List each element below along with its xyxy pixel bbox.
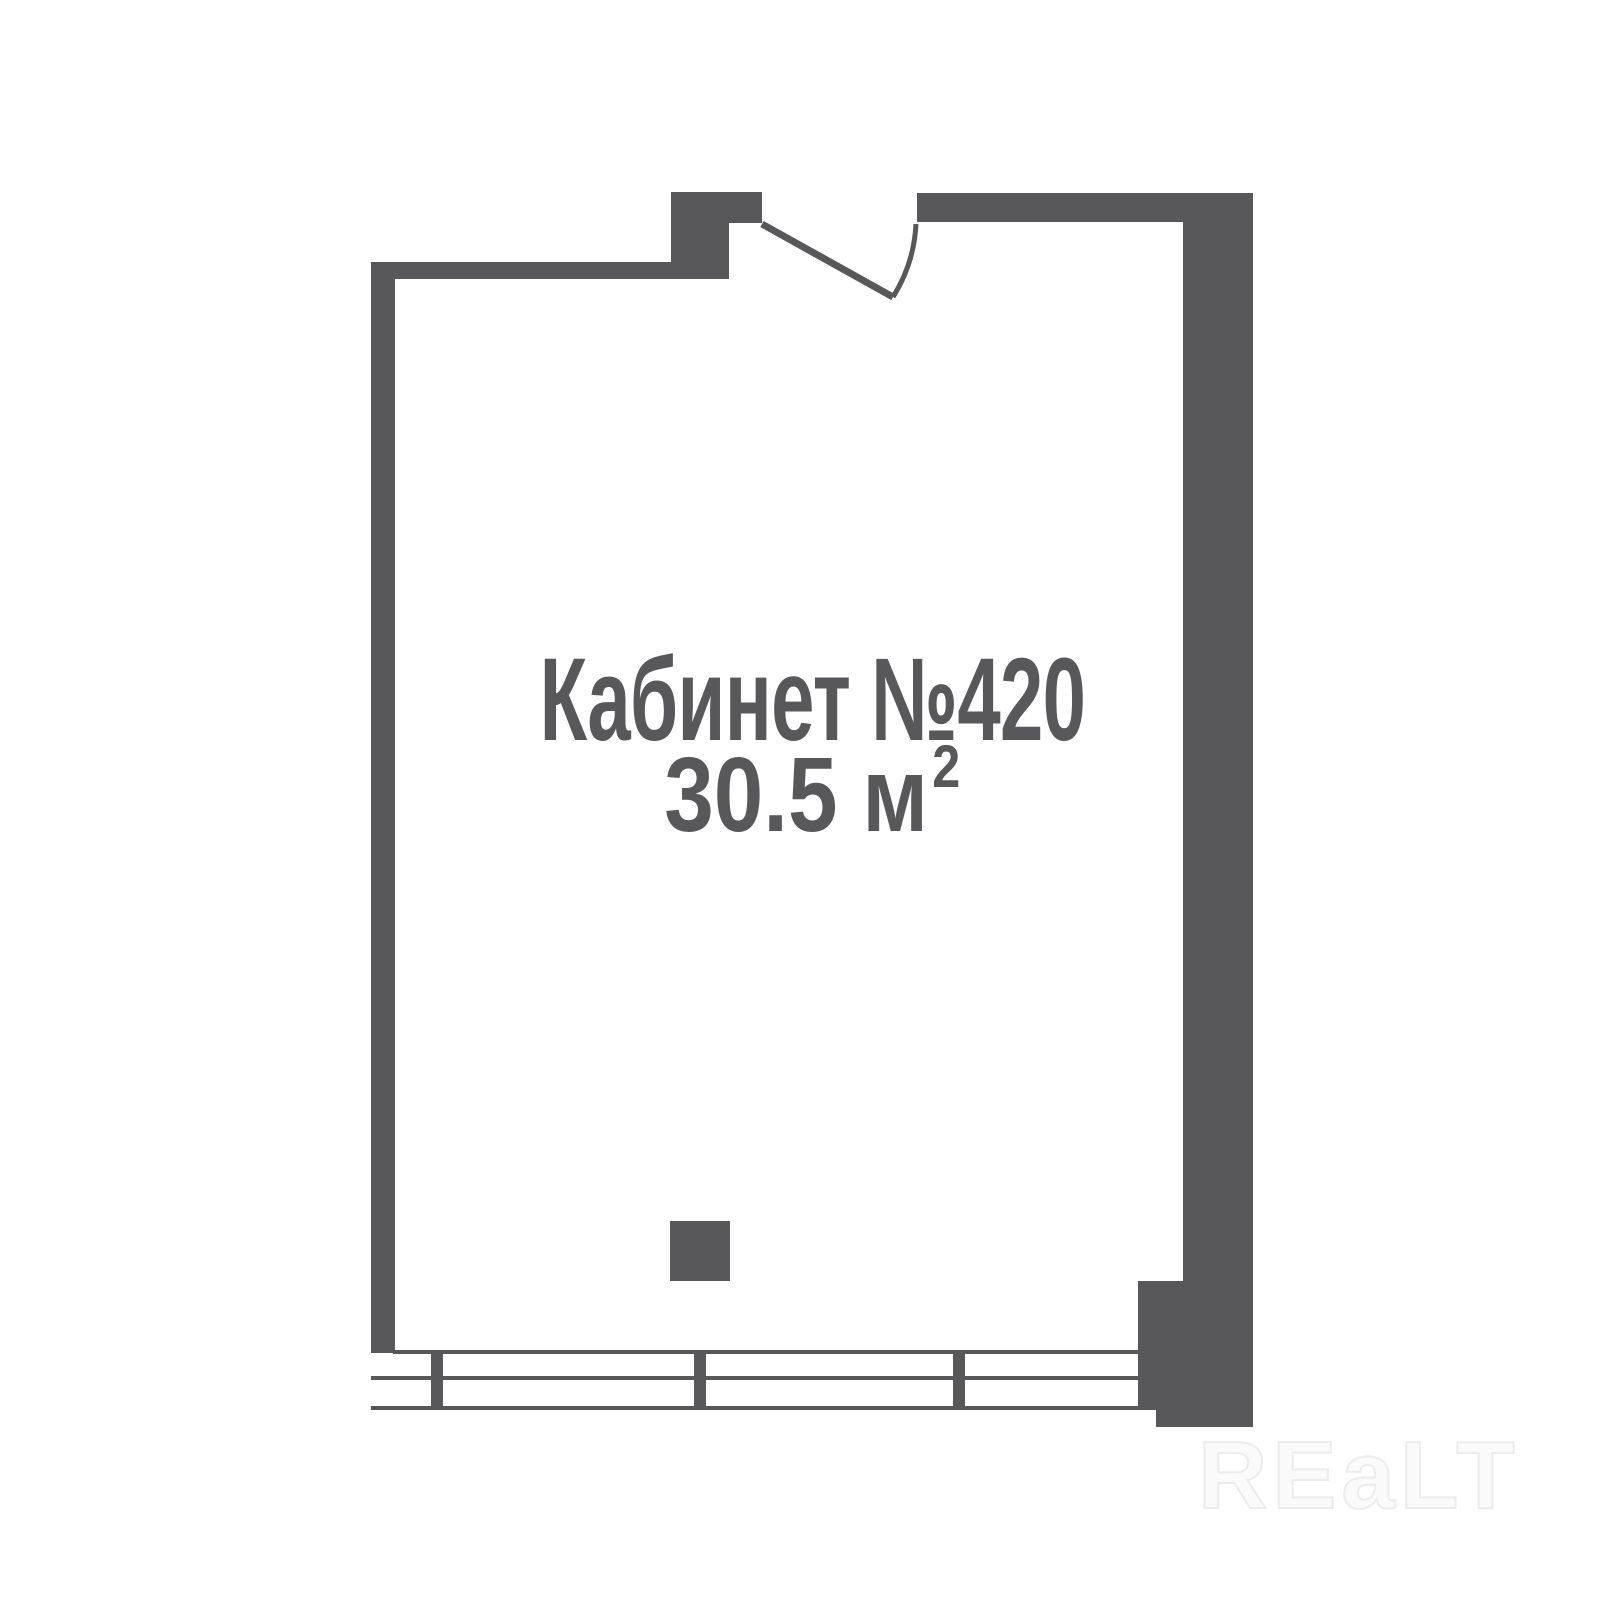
window-sill-inner	[393, 1350, 1138, 1354]
door-leaf	[762, 224, 893, 297]
window-sill-outer	[371, 1406, 1138, 1410]
top-wall-left	[371, 262, 671, 279]
floor-plan-canvas: Кабинет №420 30.5 м2 REaLT	[0, 0, 1600, 1600]
window-mullion-3	[953, 1352, 965, 1410]
right-wall-pier	[1138, 1281, 1183, 1410]
right-wall	[1183, 193, 1253, 1427]
left-wall	[371, 262, 395, 1353]
door-swing-arc	[893, 224, 916, 297]
door-pier	[671, 192, 729, 279]
window-mullion-1	[431, 1352, 443, 1410]
window-sill-middle	[371, 1376, 1138, 1380]
right-wall-foot	[1156, 1410, 1183, 1427]
realt-watermark: REaLT	[1198, 1428, 1520, 1524]
door-jamb	[729, 192, 762, 223]
floor-plan-drawing	[0, 0, 1600, 1600]
window-mullion-2	[694, 1352, 706, 1410]
column	[670, 1221, 730, 1281]
